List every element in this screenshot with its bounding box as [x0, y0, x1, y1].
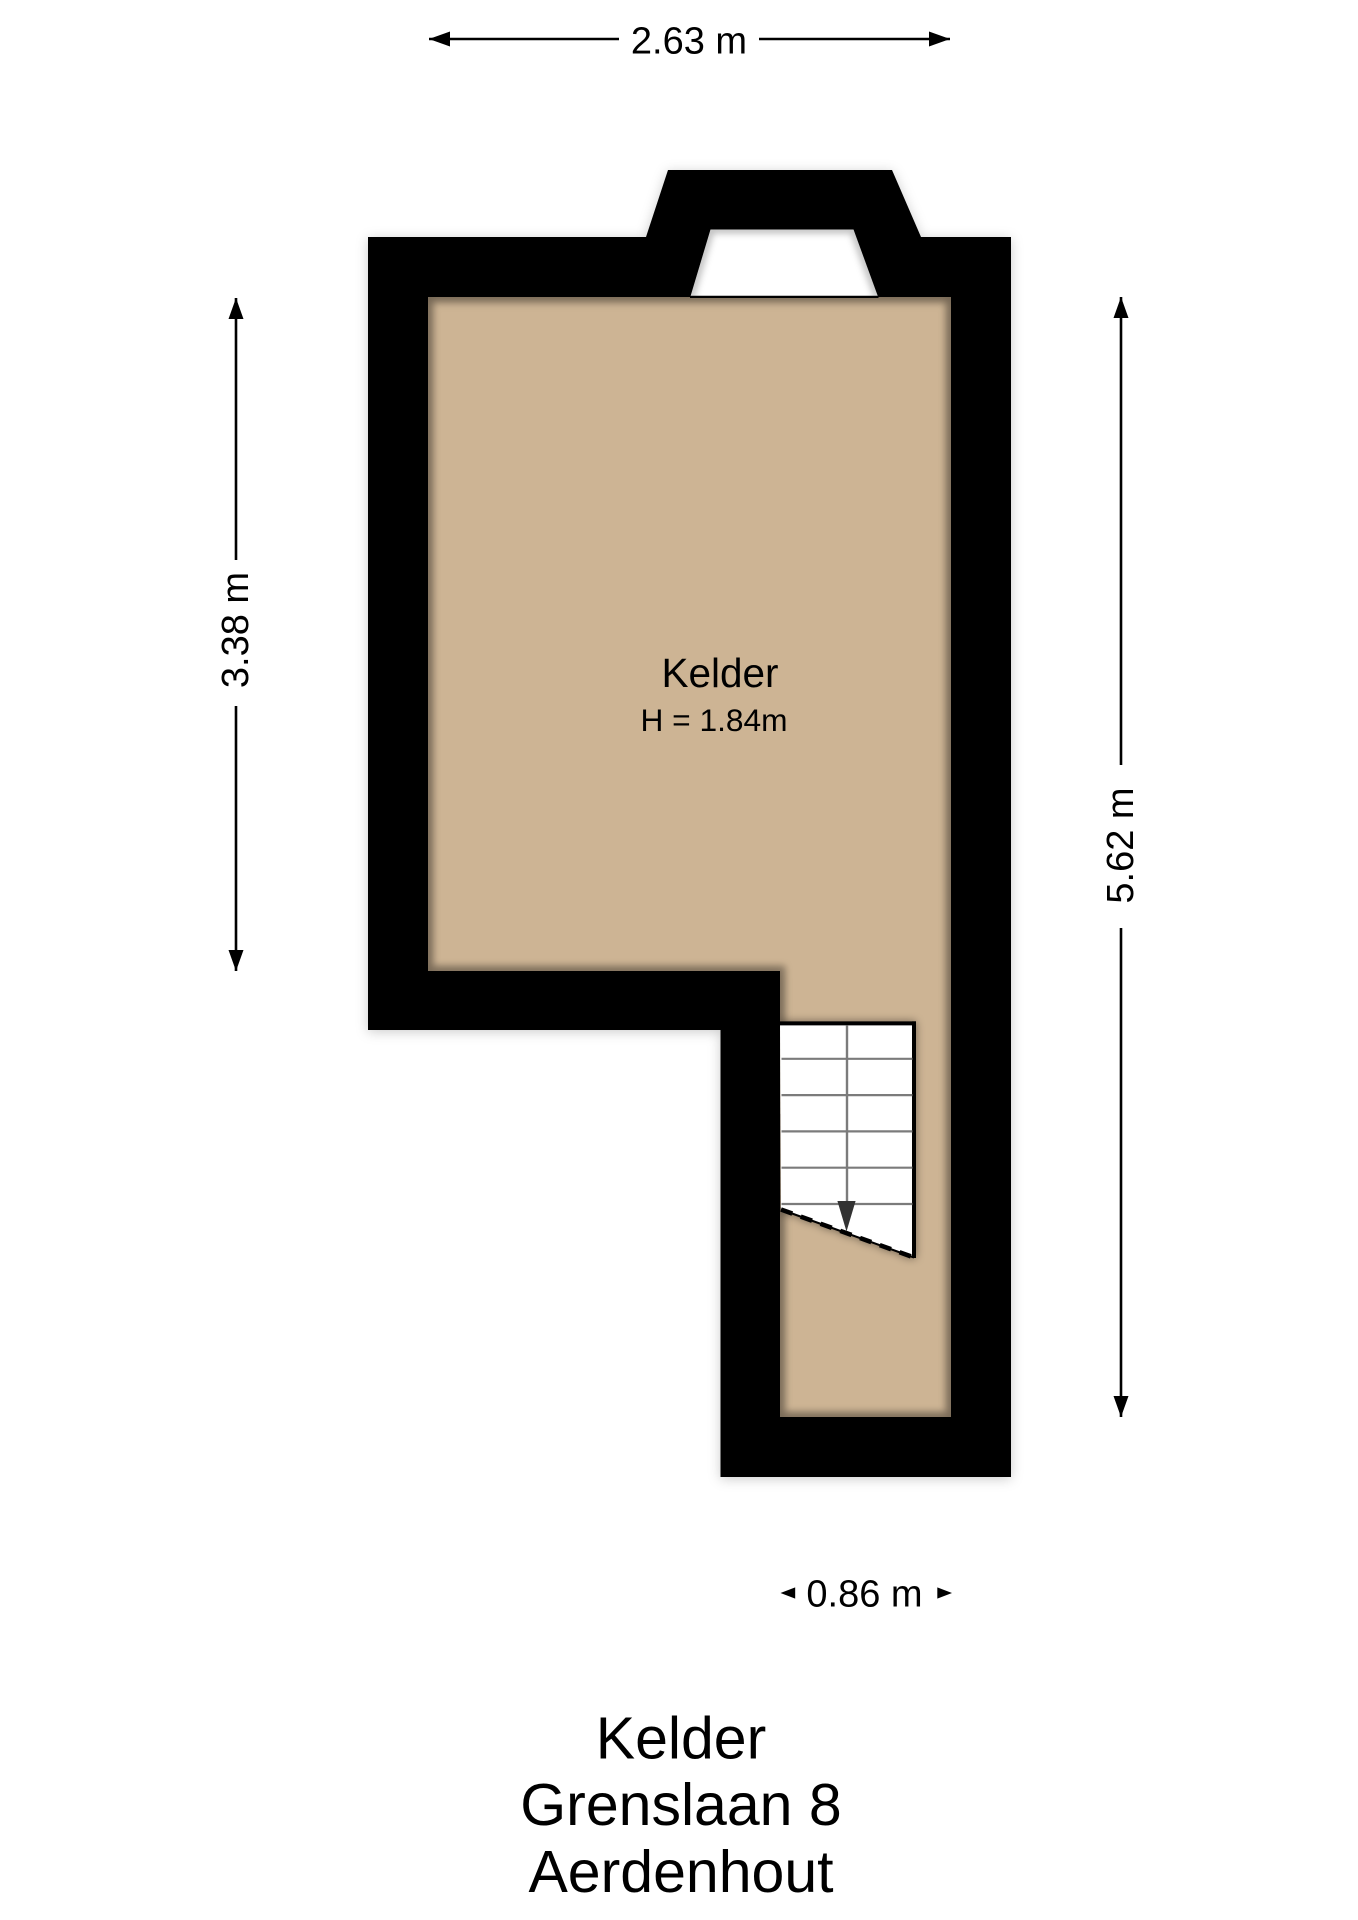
svg-text:Aerdenhout: Aerdenhout: [528, 1839, 833, 1905]
svg-text:Kelder: Kelder: [661, 650, 778, 696]
svg-text:H = 1.84m: H = 1.84m: [640, 702, 787, 738]
svg-text:2.63 m: 2.63 m: [631, 20, 747, 62]
svg-text:3.38 m: 3.38 m: [215, 572, 257, 688]
svg-text:5.62 m: 5.62 m: [1100, 787, 1142, 903]
svg-text:Grenslaan 8: Grenslaan 8: [520, 1772, 841, 1838]
svg-text:Kelder: Kelder: [596, 1706, 767, 1772]
svg-text:0.86 m: 0.86 m: [806, 1573, 922, 1615]
